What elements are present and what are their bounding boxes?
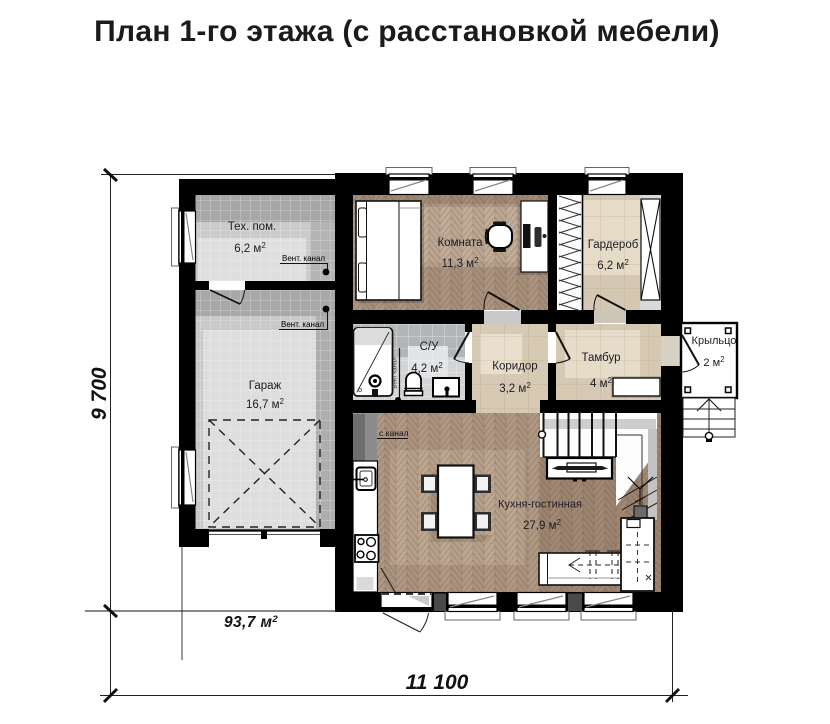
svg-text:Вент канал: Вент канал: [393, 357, 399, 389]
svg-text:Гараж: Гараж: [249, 380, 282, 392]
svg-text:с канал: с канал: [379, 428, 409, 438]
svg-text:11,3 м2: 11,3 м2: [441, 256, 479, 270]
svg-text:Гардероб: Гардероб: [588, 239, 639, 251]
svg-text:Тех. пом.: Тех. пом.: [228, 221, 276, 233]
svg-text:Коридор: Коридор: [492, 361, 537, 373]
svg-text:Вент. канал: Вент. канал: [281, 320, 324, 329]
svg-text:С/У: С/У: [420, 341, 440, 353]
svg-text:Вент. канал: Вент. канал: [282, 254, 325, 263]
svg-text:Крыльцо: Крыльцо: [692, 335, 737, 347]
svg-text:93,7 м2: 93,7 м2: [224, 614, 278, 631]
svg-text:Кухня-гостинная: Кухня-гостинная: [498, 499, 582, 511]
svg-text:Комната: Комната: [437, 237, 483, 249]
svg-text:11 100: 11 100: [406, 671, 469, 694]
svg-text:Тамбур: Тамбур: [581, 352, 620, 364]
svg-text:9 700: 9 700: [88, 367, 111, 420]
svg-text:27,9 м2: 27,9 м2: [523, 518, 561, 532]
svg-text:16,7 м2: 16,7 м2: [246, 397, 284, 411]
svg-text:План 1-го этажа (с расстановко: План 1-го этажа (с расстановкой мебели): [94, 15, 720, 48]
